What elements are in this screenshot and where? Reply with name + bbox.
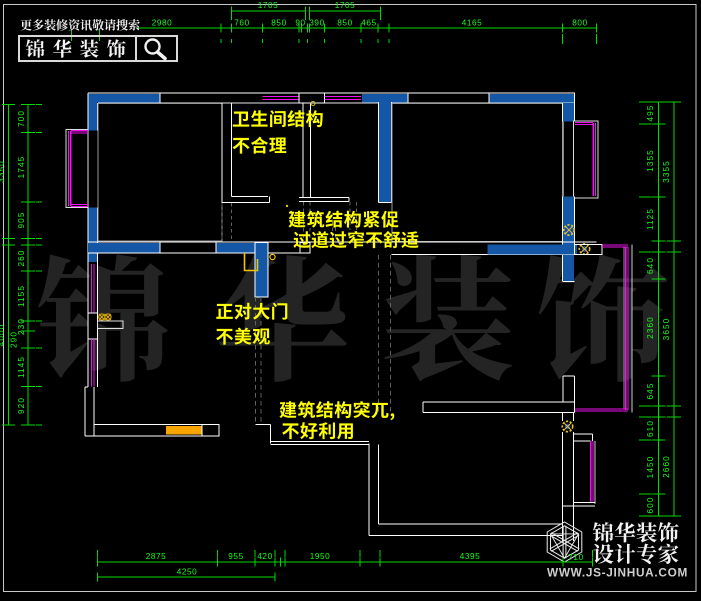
svg-text:1145: 1145 [17, 356, 26, 378]
svg-text:260: 260 [17, 250, 26, 267]
svg-text:1950: 1950 [310, 552, 331, 561]
svg-text:420: 420 [257, 552, 272, 561]
svg-text:1705: 1705 [335, 1, 356, 10]
svg-text:4165: 4165 [462, 19, 483, 28]
svg-text:1125: 1125 [646, 208, 655, 230]
svg-text:3650: 3650 [662, 318, 671, 341]
svg-text:4000: 4000 [0, 324, 6, 347]
svg-text:645: 645 [646, 383, 655, 400]
svg-text:1745: 1745 [17, 156, 26, 179]
svg-text:610: 610 [646, 420, 655, 437]
svg-text:465: 465 [361, 19, 376, 28]
svg-text:495: 495 [646, 105, 655, 122]
svg-text:2980: 2980 [152, 19, 173, 28]
svg-text:850: 850 [337, 19, 352, 28]
svg-text:2875: 2875 [146, 552, 167, 561]
svg-text:3355: 3355 [662, 160, 671, 183]
svg-text:1705: 1705 [258, 1, 279, 10]
svg-text:700: 700 [17, 110, 26, 127]
svg-text:2660: 2660 [662, 455, 671, 478]
svg-text:1355: 1355 [646, 149, 655, 172]
svg-text:800: 800 [572, 19, 587, 28]
svg-text:850: 850 [271, 19, 286, 28]
svg-text:90: 90 [295, 19, 305, 28]
svg-text:710: 710 [568, 553, 583, 562]
svg-text:920: 920 [17, 397, 26, 414]
svg-text:600: 600 [646, 497, 655, 514]
svg-text:760: 760 [234, 19, 249, 28]
svg-text:1155: 1155 [17, 285, 26, 307]
svg-text:4395: 4395 [460, 552, 481, 561]
svg-text:3350: 3350 [0, 160, 6, 183]
svg-text:2360: 2360 [646, 316, 655, 339]
svg-text:640: 640 [646, 257, 655, 274]
svg-text:390: 390 [309, 19, 324, 28]
svg-text:4250: 4250 [177, 568, 198, 577]
svg-text:WWW.JS-JINHUA.COM: WWW.JS-JINHUA.COM [547, 566, 688, 580]
svg-text:955: 955 [228, 552, 243, 561]
svg-text:1450: 1450 [646, 456, 655, 479]
svg-text:290: 290 [10, 331, 19, 348]
svg-text:905: 905 [17, 212, 26, 229]
